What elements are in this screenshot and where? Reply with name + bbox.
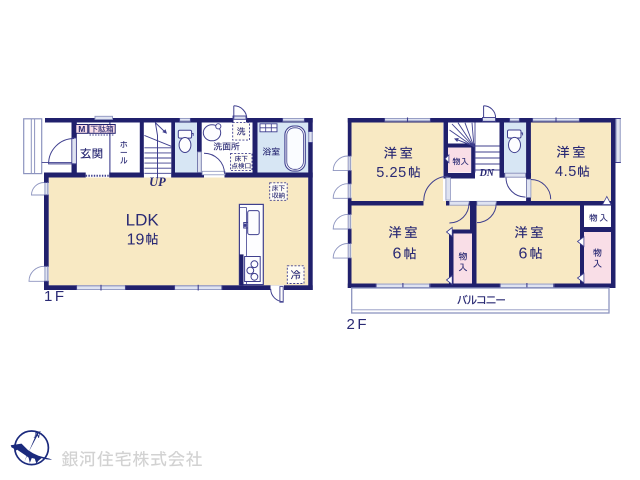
svg-text:1F: 1F <box>44 288 67 305</box>
svg-text:6: 6 <box>519 245 528 262</box>
svg-text:UP: UP <box>149 175 166 189</box>
svg-text:M: M <box>78 124 85 134</box>
svg-text:N: N <box>33 431 42 441</box>
svg-text:5.25: 5.25 <box>376 165 407 181</box>
svg-text:4.5: 4.5 <box>555 164 577 180</box>
svg-text:2F: 2F <box>347 316 370 333</box>
svg-text:19: 19 <box>127 231 145 248</box>
svg-text:DN: DN <box>479 168 495 179</box>
svg-text:LDK: LDK <box>126 210 160 229</box>
svg-text:6: 6 <box>393 246 402 263</box>
